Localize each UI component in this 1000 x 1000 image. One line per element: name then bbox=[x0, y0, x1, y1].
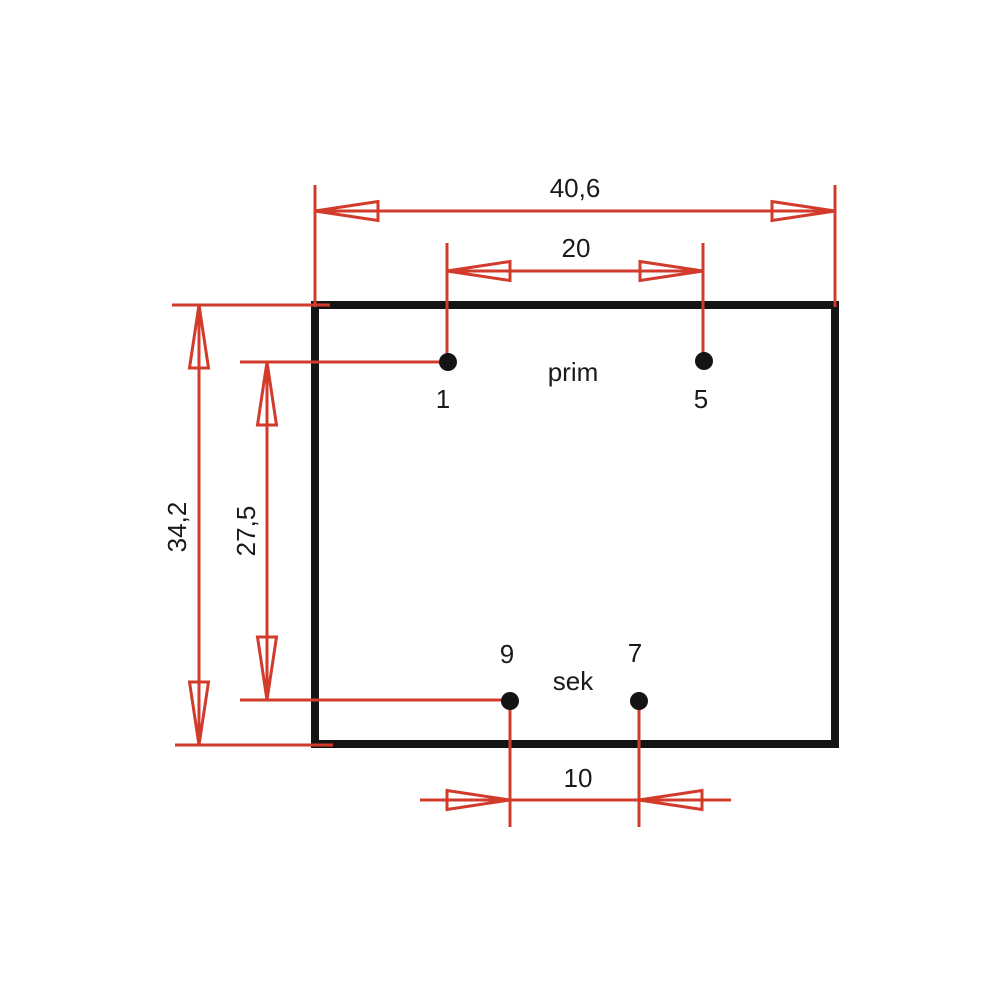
svg-text:1: 1 bbox=[436, 384, 450, 414]
svg-text:34,2: 34,2 bbox=[162, 502, 192, 553]
svg-text:20: 20 bbox=[562, 233, 591, 263]
svg-text:sek: sek bbox=[553, 666, 594, 696]
svg-text:prim: prim bbox=[548, 357, 599, 387]
svg-text:40,6: 40,6 bbox=[550, 173, 601, 203]
svg-text:27,5: 27,5 bbox=[231, 506, 261, 557]
svg-text:5: 5 bbox=[694, 384, 708, 414]
svg-text:7: 7 bbox=[628, 638, 642, 668]
svg-text:9: 9 bbox=[500, 639, 514, 669]
svg-text:10: 10 bbox=[564, 763, 593, 793]
